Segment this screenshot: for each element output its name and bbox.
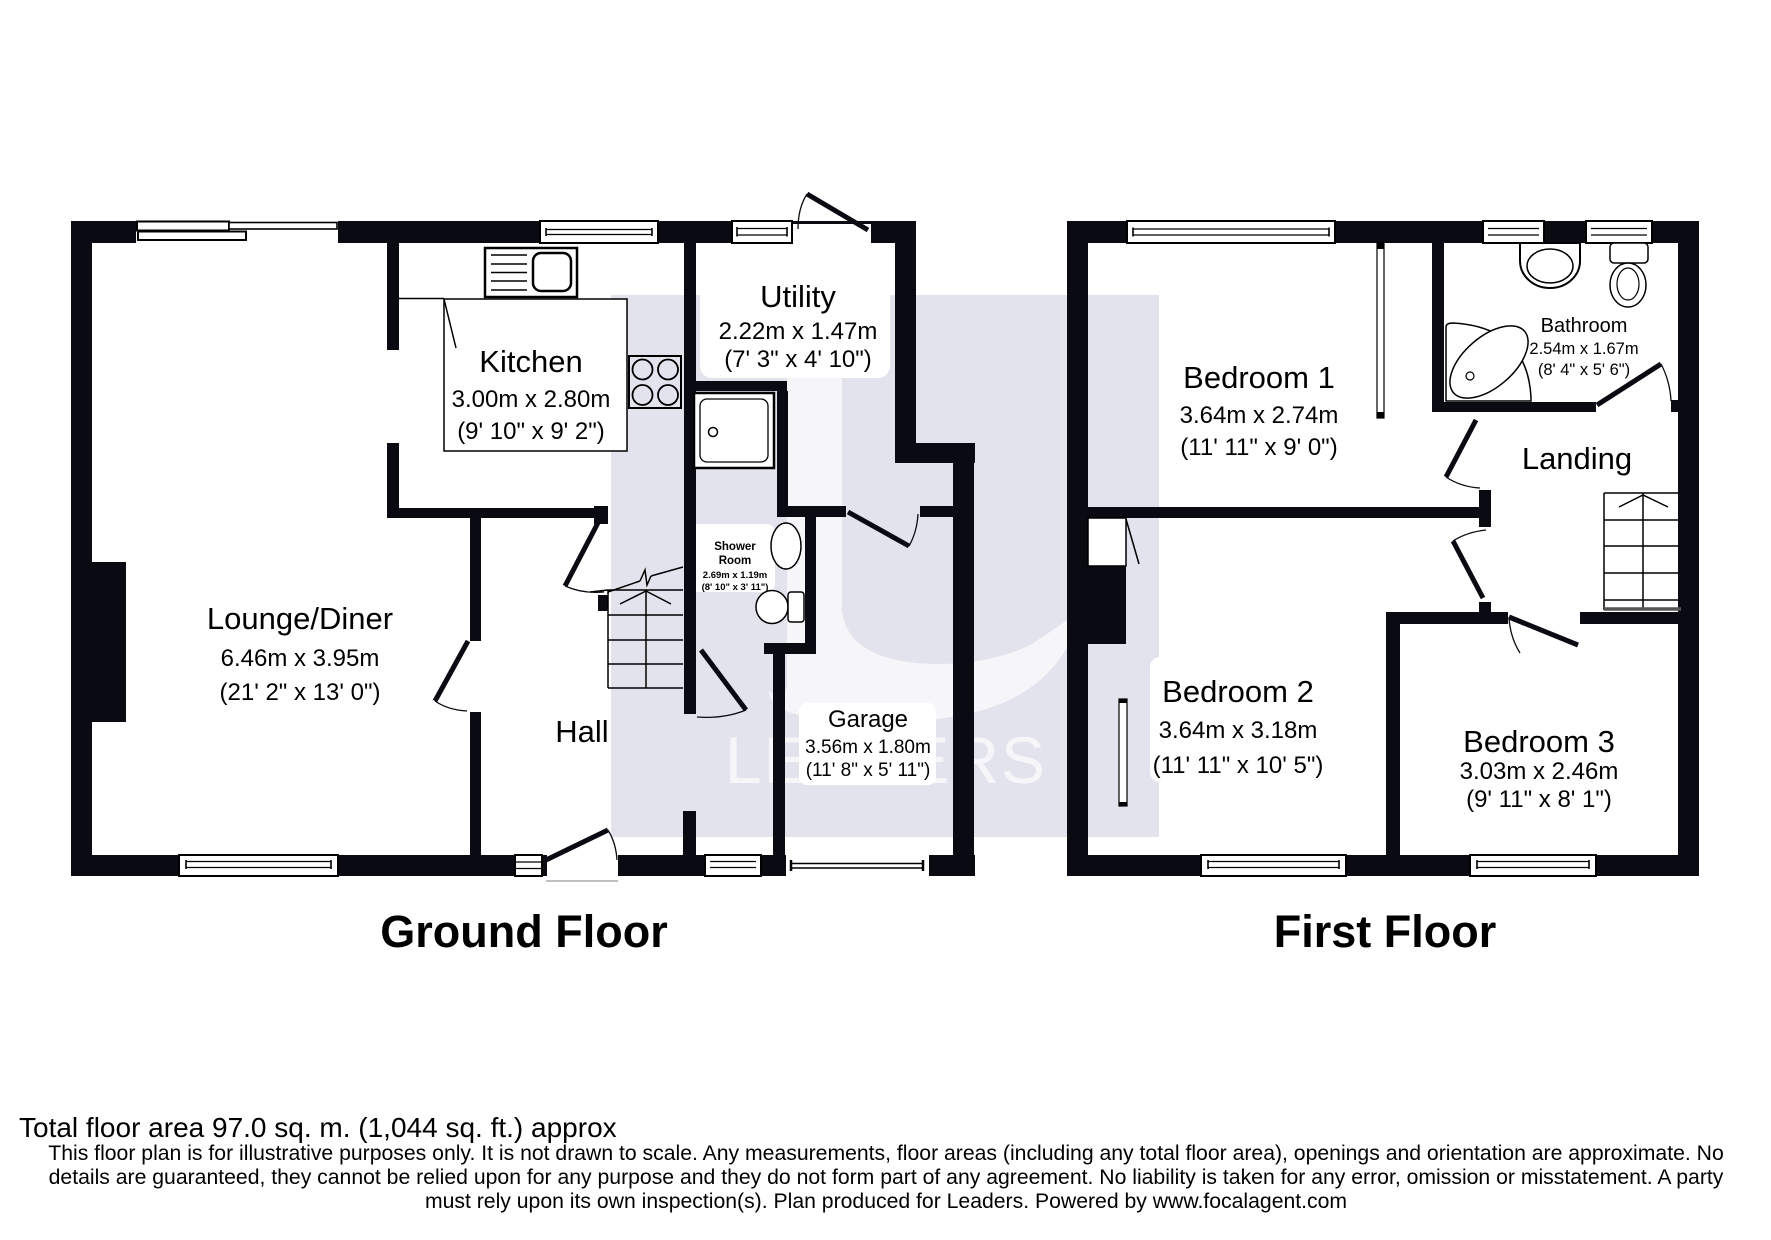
svg-text:Shower: Shower [714, 541, 756, 553]
svg-text:First Floor: First Floor [1274, 906, 1497, 957]
svg-text:Room: Room [719, 555, 752, 567]
svg-text:2.22m x 1.47m: 2.22m x 1.47m [719, 318, 878, 345]
svg-text:This floor plan is for illustr: This floor plan is for illustrative purp… [48, 1142, 1723, 1165]
svg-text:3.00m x 2.80m: 3.00m x 2.80m [452, 386, 611, 413]
svg-text:3.64m x 3.18m: 3.64m x 3.18m [1159, 717, 1318, 744]
svg-text:(11' 11" x 10' 5"): (11' 11" x 10' 5") [1153, 752, 1324, 779]
svg-text:Ground Floor: Ground Floor [380, 906, 667, 957]
svg-text:(8' 10" x 3' 11"): (8' 10" x 3' 11") [702, 582, 769, 593]
svg-text:2.54m x 1.67m: 2.54m x 1.67m [1529, 340, 1638, 358]
svg-text:Landing: Landing [1522, 441, 1632, 476]
svg-text:Bedroom 2: Bedroom 2 [1162, 674, 1314, 709]
svg-text:(21' 2" x 13' 0"): (21' 2" x 13' 0") [220, 679, 381, 706]
svg-text:Bedroom 3: Bedroom 3 [1463, 724, 1615, 759]
svg-text:must rely upon its own inspect: must rely upon its own inspection(s). Pl… [425, 1190, 1347, 1213]
svg-text:Total floor area 97.0 sq. m. (: Total floor area 97.0 sq. m. (1,044 sq. … [19, 1112, 617, 1143]
svg-text:(11' 11" x 9' 0"): (11' 11" x 9' 0") [1180, 434, 1337, 461]
svg-text:(7' 3" x 4' 10"): (7' 3" x 4' 10") [724, 346, 872, 373]
svg-text:Bathroom: Bathroom [1541, 315, 1628, 337]
svg-text:3.56m x 1.80m: 3.56m x 1.80m [805, 737, 931, 758]
svg-text:(9' 10" x 9' 2"): (9' 10" x 9' 2") [457, 418, 605, 445]
svg-text:(11' 8" x 5' 11"): (11' 8" x 5' 11") [806, 760, 931, 781]
svg-text:Utility: Utility [760, 279, 836, 314]
svg-text:Garage: Garage [828, 706, 908, 733]
svg-text:Kitchen: Kitchen [479, 344, 582, 379]
svg-text:Bedroom 1: Bedroom 1 [1183, 360, 1335, 395]
svg-text:6.46m x 3.95m: 6.46m x 3.95m [221, 645, 380, 672]
svg-text:Hall: Hall [555, 714, 608, 749]
svg-text:details are guaranteed, they c: details are guaranteed, they cannot be r… [49, 1166, 1724, 1189]
svg-text:3.64m x 2.74m: 3.64m x 2.74m [1180, 402, 1339, 429]
svg-text:2.69m x 1.19m: 2.69m x 1.19m [703, 570, 767, 581]
svg-text:(9' 11" x 8' 1"): (9' 11" x 8' 1") [1466, 786, 1612, 813]
svg-text:(8' 4" x 5' 6"): (8' 4" x 5' 6") [1538, 361, 1630, 379]
svg-text:3.03m x 2.46m: 3.03m x 2.46m [1460, 758, 1619, 785]
svg-text:Lounge/Diner: Lounge/Diner [207, 601, 393, 636]
